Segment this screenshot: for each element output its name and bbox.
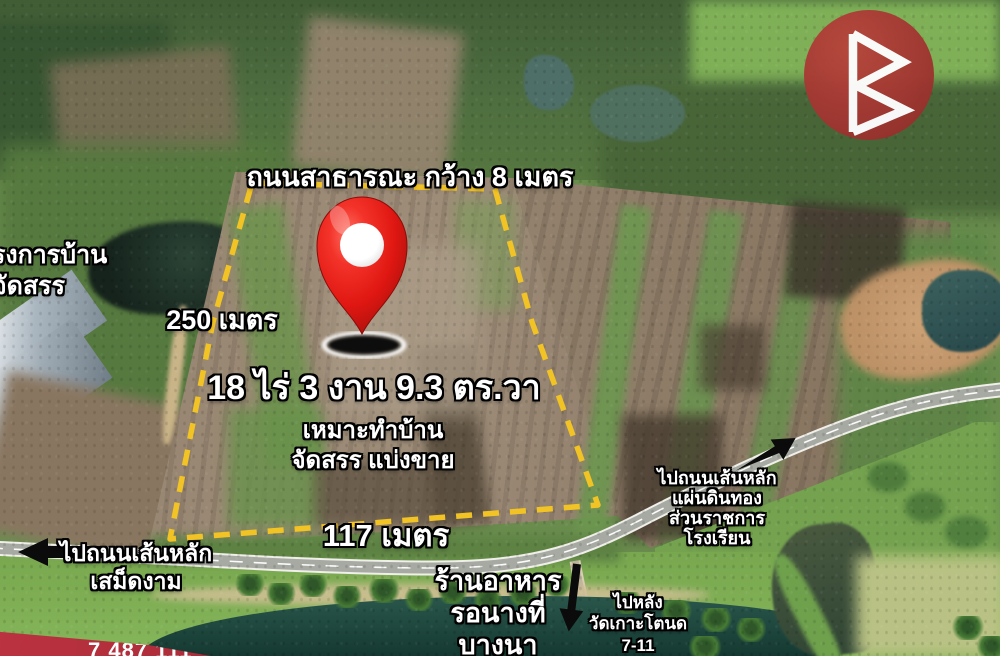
pin-shadow — [328, 336, 400, 355]
aerial-photo: ถนนสาธารณะ กว้าง 8 เมตร 250 เมตร 18 ไร่ … — [0, 0, 1000, 656]
triangle-b-monogram-icon — [804, 10, 934, 140]
restaurant-line3: บางนา — [435, 630, 562, 656]
restaurant-line1: ร้านอาหาร — [435, 566, 562, 598]
east-line1: ไปถนนเส้นหลัก — [657, 468, 776, 488]
suitability-label: เหมาะทำบ้าน จัดสรร แบ่งขาย — [291, 416, 454, 476]
east-line2: แผ่นดินทอง — [657, 488, 776, 508]
west-line1: ไปถนนเส้นหลัก — [60, 540, 212, 568]
arrow-down-icon — [557, 563, 589, 633]
south-direction-label: ไปหลัง วัดเกาะโตนด 7-11 — [589, 592, 687, 656]
map-pin-icon — [317, 197, 407, 334]
project-label: รงการบ้าน จัดสรร — [0, 240, 107, 303]
project-line1: รงการบ้าน — [0, 240, 107, 271]
south-line1: ไปหลัง — [589, 592, 687, 613]
west-direction-label: ไปถนนเส้นหลัก เสม็ดงาม — [60, 540, 212, 595]
east-line4: โรงเรียน — [657, 528, 776, 548]
project-line2: จัดสรร — [0, 271, 107, 302]
bottom-side-length: 117 เมตร — [323, 510, 449, 560]
east-line3: ส่วนราชการ — [657, 508, 776, 528]
suitability-line1: เหมาะทำบ้าน — [291, 416, 454, 446]
south-line2: วัดเกาะโตนด — [589, 613, 687, 634]
south-line3: 7-11 — [589, 635, 687, 656]
left-side-length: 250 เมตร — [166, 298, 278, 341]
suitability-line2: จัดสรร แบ่งขาย — [291, 446, 454, 476]
east-direction-label: ไปถนนเส้นหลัก แผ่นดินทอง ส่วนราชการ โรงเ… — [657, 468, 776, 549]
restaurant-line2: รอนางที่ — [435, 598, 562, 630]
restaurant-label: ร้านอาหาร รอนางที่ บางนา — [435, 566, 562, 656]
west-line2: เสม็ดงาม — [60, 568, 212, 596]
land-area-label: 18 ไร่ 3 งาน 9.3 ตร.วา — [207, 360, 541, 414]
brand-logo — [804, 10, 934, 140]
road-width-label: ถนนสาธารณะ กว้าง 8 เมตร — [246, 155, 573, 198]
